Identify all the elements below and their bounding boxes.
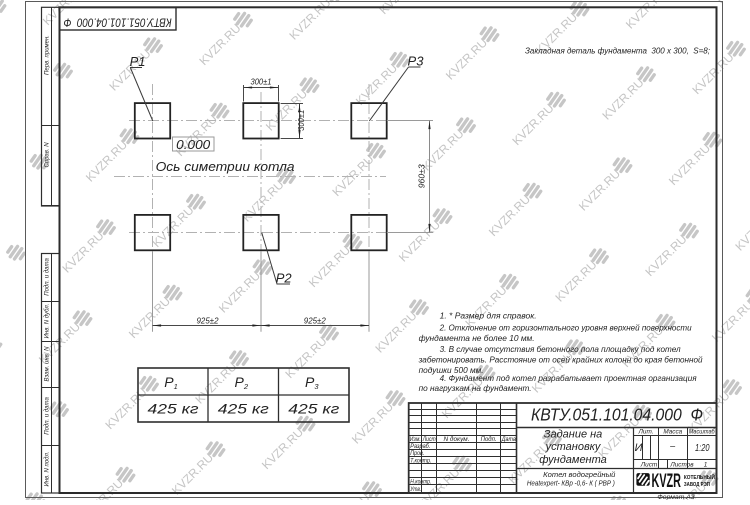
svg-text:Разраб.: Разраб. [410,443,430,450]
svg-text:Взам. инв. N: Взам. инв. N [44,346,50,382]
svg-text:Изм.: Изм. [410,436,421,443]
svg-text:Закладная деталь фундамента 3: Закладная деталь фундамента 300 х 300, S… [525,46,711,56]
svg-text:1: 1 [704,461,708,468]
svg-text:2. Отклонение от горизонтально: 2. Отклонение от горизонтального уровня … [439,323,692,333]
svg-text:забетонировать. Расстояние от: забетонировать. Расстояние от осей крайн… [418,355,703,365]
svg-text:КВТУ.051.101.04.000 Ф: КВТУ.051.101.04.000 Ф [531,405,703,425]
svg-text:И: И [635,442,643,454]
svg-text:Подп. и дата: Подп. и дата [44,258,50,296]
svg-text:Heatexpert- КВр -0,6- К ( РВР: Heatexpert- КВр -0,6- К ( РВР ) [527,479,615,488]
svg-text:960±3: 960±3 [417,164,426,189]
svg-text:Пров.: Пров. [410,450,424,457]
svg-text:N докум.: N докум. [444,436,470,443]
svg-text:ЗАВОД РЭП: ЗАВОД РЭП [684,482,710,488]
svg-text:1:20: 1:20 [695,442,710,454]
svg-text:Подп. и дата: Подп. и дата [44,397,50,435]
svg-text:Инв. N дубл.: Инв. N дубл. [44,304,50,339]
svg-text:Подп.: Подп. [481,436,497,443]
svg-text:Н.контр.: Н.контр. [410,479,431,486]
svg-text:300±1: 300±1 [251,77,272,86]
svg-text:925±2: 925±2 [304,316,327,325]
svg-text:Перв. примен.: Перв. примен. [44,35,50,75]
svg-text:0.000: 0.000 [176,137,211,152]
svg-text:KVZR: KVZR [652,471,682,492]
svg-text:Справ. N: Справ. N [44,142,50,168]
svg-text:фундамента: фундамента [539,454,607,466]
svg-text:Утв.: Утв. [410,486,422,493]
svg-text:425 кг: 425 кг [148,401,199,417]
svg-text:Инв. N подл.: Инв. N подл. [44,451,50,486]
svg-text:4. Фундамент под котел разраба: 4. Фундамент под котел разрабатывает про… [440,373,698,383]
svg-text:1. * Размер для справок.: 1. * Размер для справок. [440,311,537,321]
svg-text:Задание на: Задание на [544,429,603,441]
svg-text:Лит.: Лит. [638,429,654,436]
svg-text:фундамента не более 10 мм.: фундамента не более 10 мм. [419,333,535,343]
svg-text:по нагрузкам на фундамент.: по нагрузкам на фундамент. [419,383,532,393]
svg-text:Формат А3: Формат А3 [657,494,694,500]
svg-text:Лист: Лист [422,436,436,443]
svg-text:–: – [669,441,676,451]
svg-text:КОТЕЛЬНЫЙ: КОТЕЛЬНЫЙ [684,473,715,481]
svg-text:установку: установку [545,441,602,453]
svg-text:Листов: Листов [669,461,694,468]
svg-text:Лист: Лист [640,461,658,468]
svg-text:Т.контр.: Т.контр. [410,457,431,464]
svg-text:Ось симетрии котла: Ось симетрии котла [156,160,295,174]
svg-text:3. В случае отсутствия бетонно: 3. В случае отсутствия бетонного пола пл… [440,344,681,354]
svg-text:Масштаб: Масштаб [689,428,715,436]
svg-text:425 кг: 425 кг [288,401,339,417]
svg-text:КВТУ.051.101.04.000 Ф: КВТУ.051.101.04.000 Ф [64,16,172,28]
svg-text:925±2: 925±2 [197,316,220,325]
svg-text:P3: P3 [408,53,425,68]
svg-text:425 кг: 425 кг [218,401,269,417]
svg-text:P1: P1 [130,54,146,69]
svg-text:P2: P2 [276,270,293,285]
svg-text:Дата: Дата [501,436,516,443]
svg-text:Масса: Масса [663,429,682,436]
svg-text:300±1: 300±1 [297,110,306,131]
